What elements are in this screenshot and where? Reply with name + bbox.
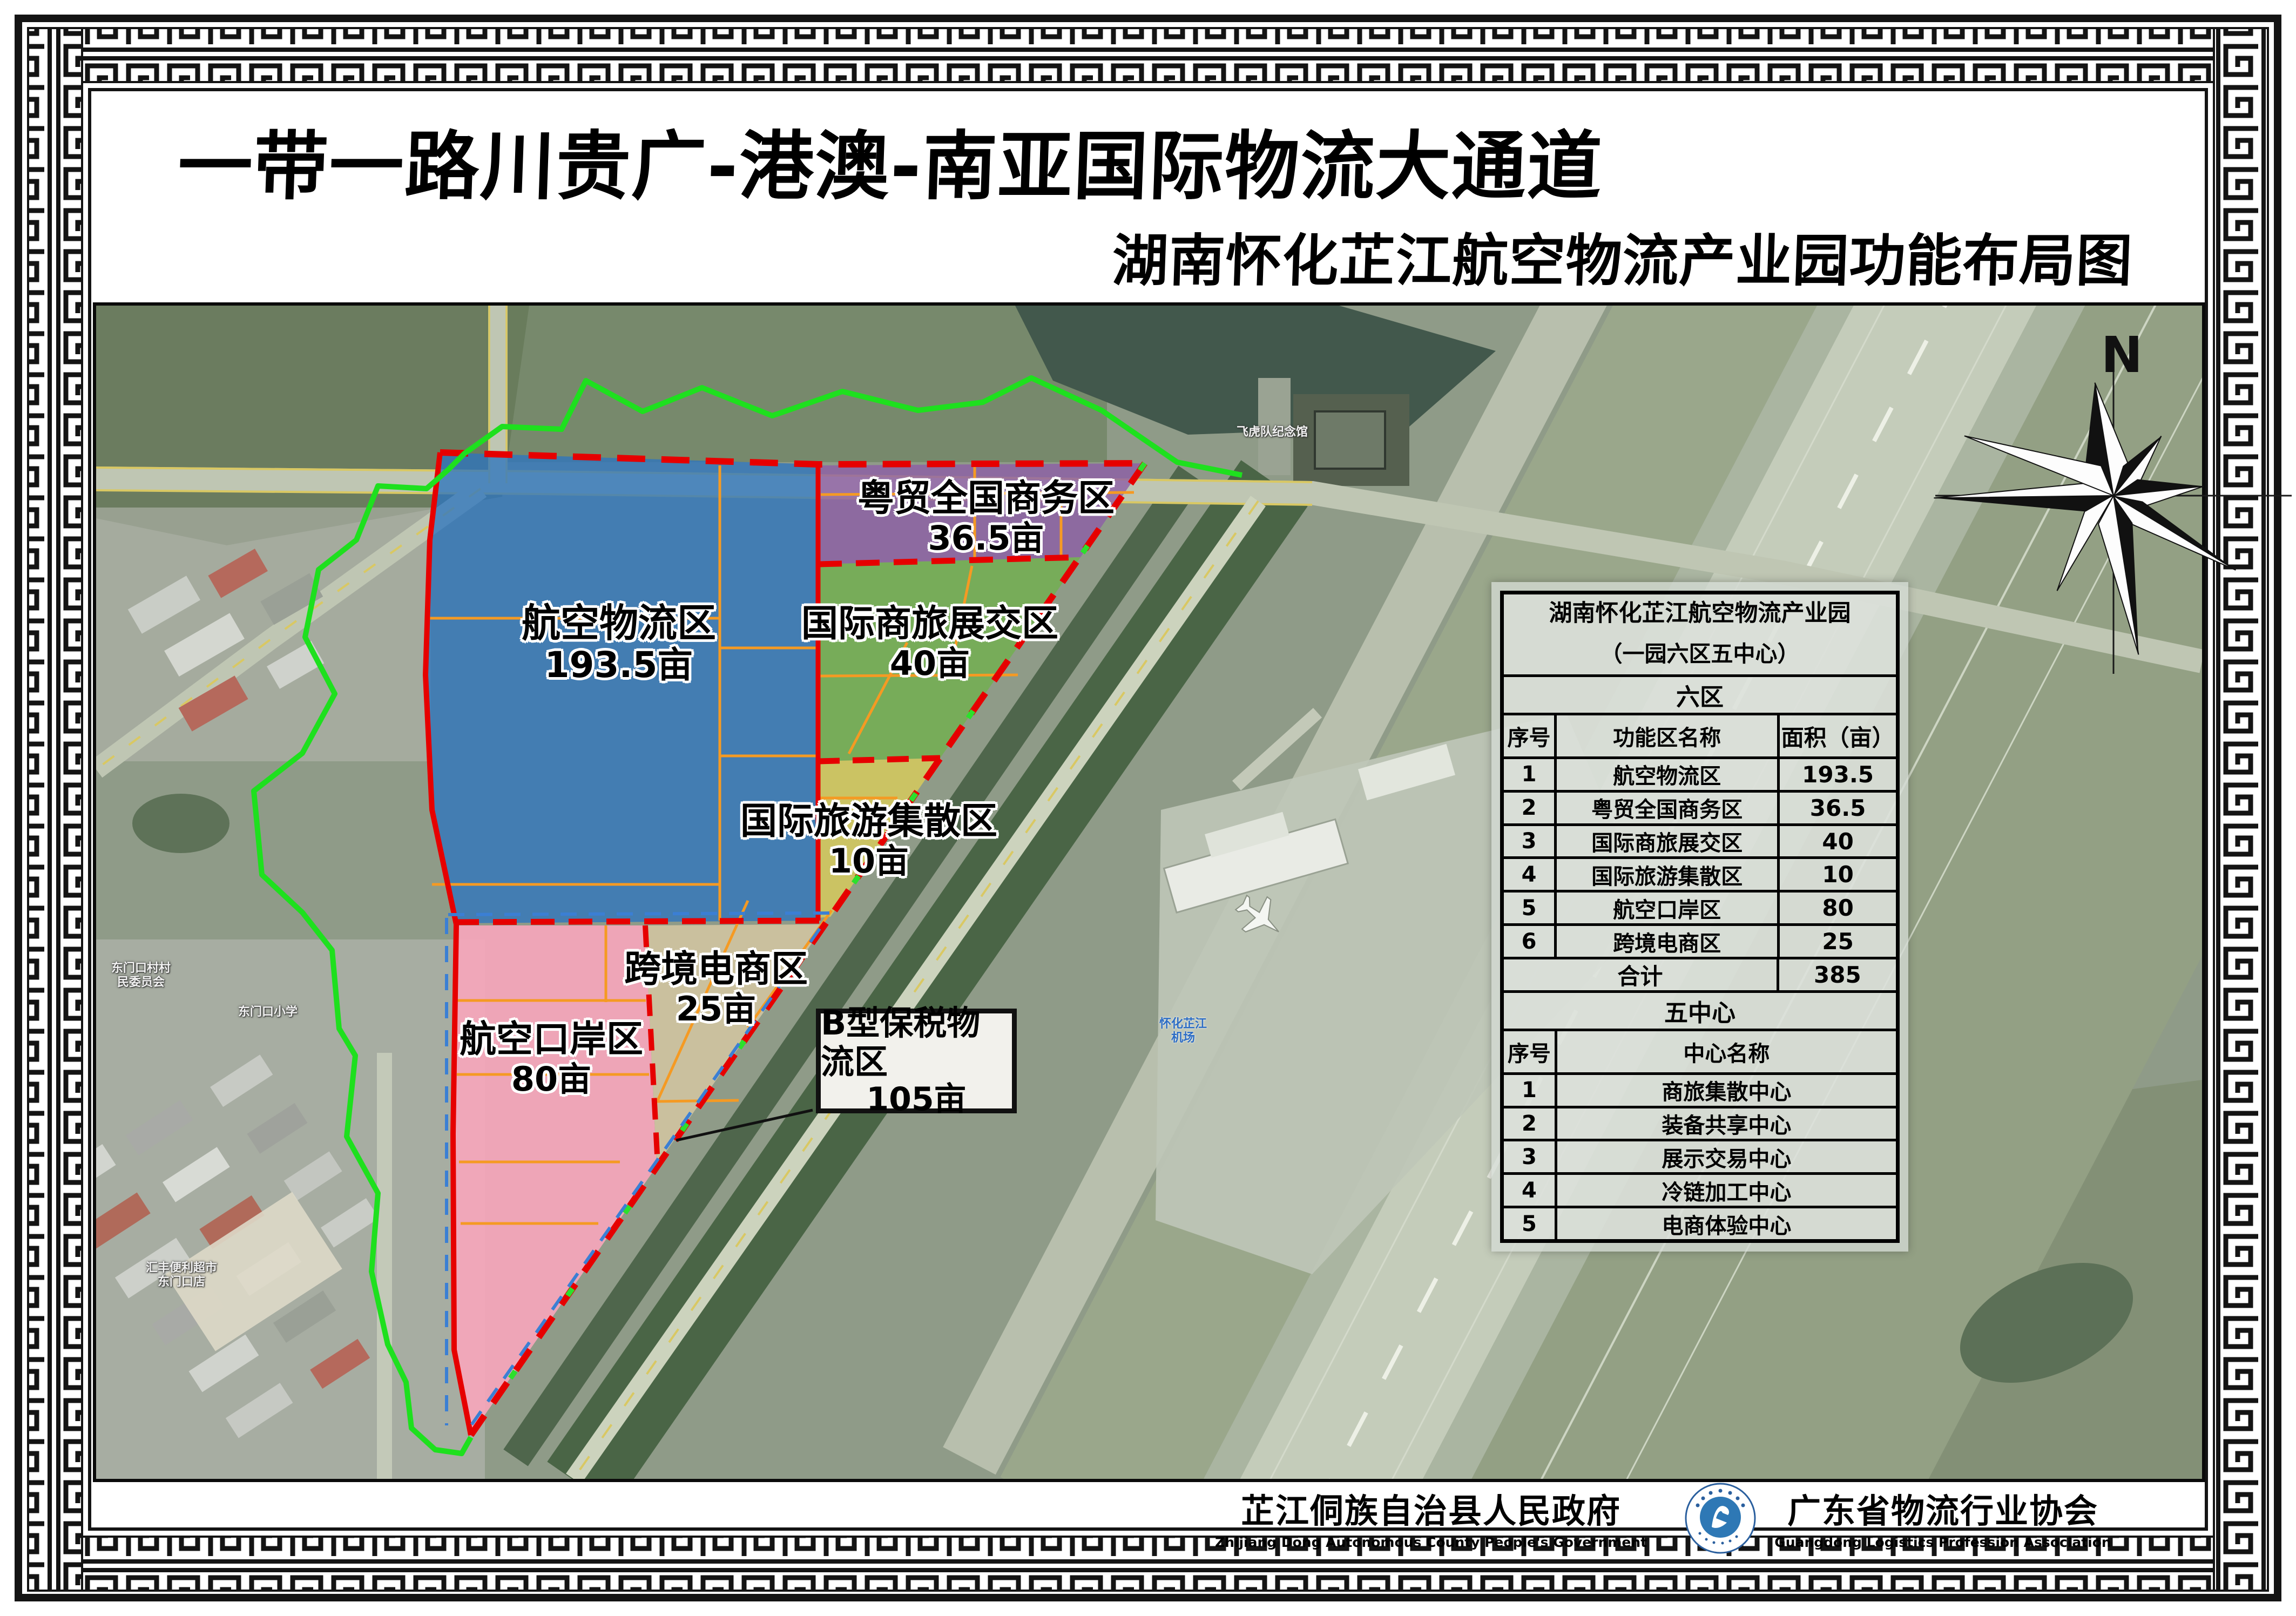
map-label-memorial: 飞虎队纪念馆 (1237, 425, 1308, 440)
table-row: 1 商旅集散中心 (1504, 1075, 1896, 1108)
label-zone-intl-tourism: 国际旅游集散区 10亩 (740, 801, 997, 880)
map-label-village: 东门口村村 民委员会 (111, 962, 171, 990)
label-zone-air-port: 航空口岸区 80亩 (460, 1019, 643, 1098)
table-row: 6 跨境电商区 25 (1504, 926, 1896, 959)
association-name-cn: 广东省物流行业协会 (1765, 1484, 2121, 1532)
section-five-centers: 五中心 (1504, 993, 1896, 1029)
table-row: 5 航空口岸区 80 (1504, 892, 1896, 926)
map-label-supermarket: 汇丰便利超市 东门口店 (146, 1261, 217, 1290)
table-row: 4 冷链加工中心 (1504, 1175, 1896, 1208)
bonded-zone-callout: B型保税物流区 105亩 (816, 1009, 1017, 1113)
label-zone-yuemao-business: 粤贸全国商务区 36.5亩 (857, 478, 1115, 557)
page-title: 一带一路川贵广-港澳-南亚国际物流大通道 (177, 106, 1692, 214)
table-total-row: 合计 385 (1504, 959, 1896, 993)
table-title: 湖南怀化芷江航空物流产业园 (1504, 594, 1896, 628)
label-zone-cross-border-ecom: 跨境电商区 25亩 (624, 949, 808, 1028)
compass-north-label: N (2101, 326, 2143, 384)
label-zone-aviation-logistics: 航空物流区 193.5亩 (522, 601, 716, 685)
table-row: 2 粤贸全国商务区 36.5 (1504, 793, 1896, 826)
label-zone-intl-expo: 国际商旅展交区 40亩 (801, 604, 1058, 682)
map-label-airport: 怀化芷江 机场 (1159, 1017, 1207, 1046)
map-label-school: 东门口小学 (238, 1005, 298, 1019)
six-header-row: 序号 功能区名称 面积（亩） (1504, 715, 1896, 759)
table-subtitle: （一园六区五中心） (1504, 635, 1896, 668)
five-header-row: 序号 中心名称 (1504, 1031, 1896, 1075)
table-row: 2 装备共享中心 (1504, 1108, 1896, 1142)
association-name-en: Guangdong Logistics Profession Associati… (1765, 1534, 2121, 1550)
section-six-zones: 六区 (1504, 677, 1896, 713)
page: { "titles": { "main": "一带一路川贵广-港澳-南亚国际物流… (0, 0, 2296, 1616)
table-row: 4 国际旅游集散区 10 (1504, 859, 1896, 892)
zone-data-table: 湖南怀化芷江航空物流产业园 （一园六区五中心） 六区 序号 功能区名称 面积（亩… (1491, 582, 1908, 1252)
page-subtitle: 湖南怀化芷江航空物流产业园功能布局图 (1111, 215, 2096, 296)
association-credit: 广东省物流行业协会 Guangdong Logistics Profession… (1765, 1484, 2121, 1550)
government-name-en: Zhijiang Dong Autonomous County People's… (1204, 1534, 1658, 1550)
table-row: 3 展示交易中心 (1504, 1141, 1896, 1175)
table-row: 1 航空物流区 193.5 (1504, 759, 1896, 793)
table-row: 5 电商体验中心 (1504, 1208, 1896, 1239)
government-credit: 芷江侗族自治县人民政府 Zhijiang Dong Autonomous Cou… (1204, 1484, 1658, 1550)
table-row: 3 国际商旅展交区 40 (1504, 826, 1896, 860)
government-name-cn: 芷江侗族自治县人民政府 (1204, 1484, 1658, 1532)
association-logo (1684, 1482, 1757, 1555)
satellite-plan-map: 航空物流区 193.5亩 粤贸全国商务区 36.5亩 国际商旅展交区 40亩 国… (93, 302, 2205, 1482)
